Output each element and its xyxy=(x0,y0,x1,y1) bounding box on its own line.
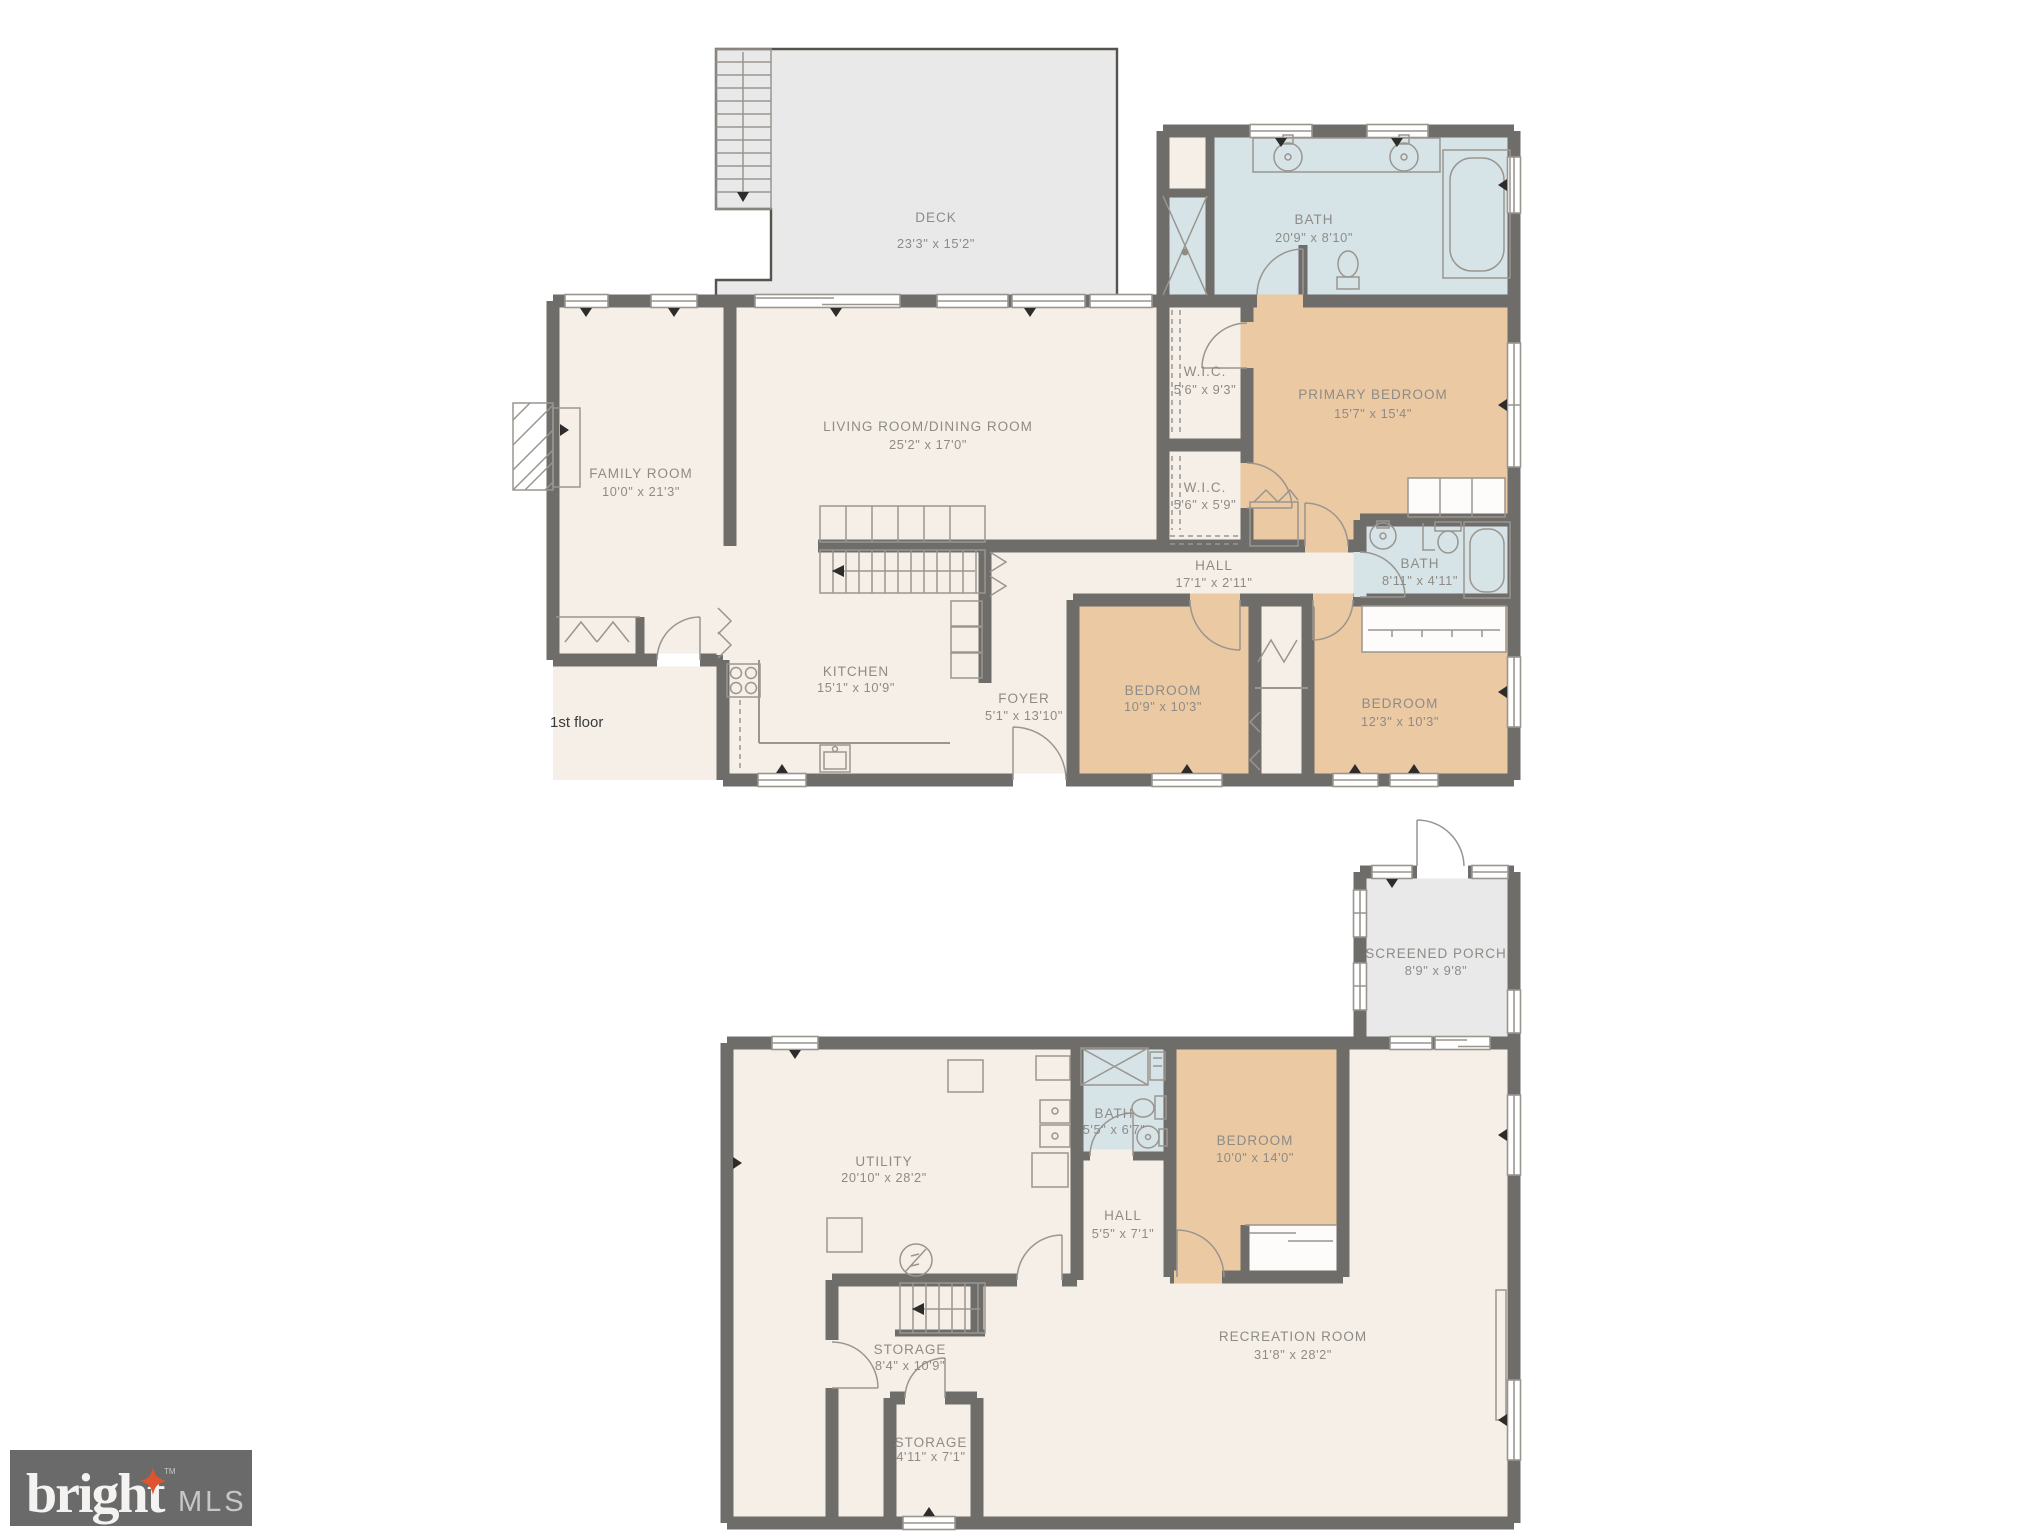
room-dims: 12'3" x 10'3" xyxy=(1361,714,1439,729)
room-dims: 20'10" x 28'2" xyxy=(841,1170,927,1185)
deck: DECK 23'3" x 15'2" xyxy=(716,49,1117,301)
logo-mls-text: MLS xyxy=(178,1486,247,1518)
room-dims: 10'0" x 14'0" xyxy=(1216,1150,1294,1165)
room-dims: 17'1" x 2'11" xyxy=(1175,575,1252,590)
room-label: BATH xyxy=(1400,556,1439,571)
room-dims: 15'1" x 10'9" xyxy=(817,680,895,695)
floor-caption: 1st floor xyxy=(550,714,603,731)
room-label: FOYER xyxy=(998,691,1050,706)
room-dims: 5'6" x 9'3" xyxy=(1174,382,1237,397)
room-label: KITCHEN xyxy=(823,664,889,679)
room-label: DECK xyxy=(915,210,957,225)
room-bath xyxy=(1077,1043,1170,1156)
room-label: STORAGE xyxy=(895,1435,968,1450)
room-dims: 8'11" x 4'11" xyxy=(1382,573,1458,588)
room-dims: 8'9" x 9'8" xyxy=(1405,963,1468,978)
room-dims: 4'11" x 7'1" xyxy=(896,1449,965,1464)
room-dims: 15'7" x 15'4" xyxy=(1334,406,1412,421)
porch-slider xyxy=(1435,1037,1490,1050)
room-label: BATH xyxy=(1294,212,1333,227)
room-label: HALL xyxy=(1104,1208,1142,1223)
room-label: BEDROOM xyxy=(1217,1133,1294,1148)
room-dims: 10'0" x 21'3" xyxy=(602,484,680,499)
room-dims: 20'9" x 8'10" xyxy=(1275,230,1353,245)
room-label: BATH xyxy=(1094,1106,1133,1121)
room-dims: 5'1" x 13'10" xyxy=(985,708,1063,723)
room-dims: 5'5" x 7'1" xyxy=(1092,1226,1155,1241)
brand-logo: bright TM MLS xyxy=(10,1450,252,1526)
room-label: SCREENED PORCH xyxy=(1365,946,1507,961)
room-label: W.I.C. xyxy=(1184,364,1227,379)
room-label: FAMILY ROOM xyxy=(589,466,693,481)
room-primary-bath xyxy=(1163,131,1514,301)
room-dims: 31'8" x 28'2" xyxy=(1254,1347,1332,1362)
lower-floor-plan: SCREENED PORCH 8'9" x 9'8" UTILITY 20'10… xyxy=(727,820,1521,1530)
primary-closet xyxy=(1408,478,1505,517)
room-label: W.I.C. xyxy=(1184,480,1227,495)
room-dims: 23'3" x 15'2" xyxy=(897,236,975,251)
room-label: UTILITY xyxy=(855,1154,912,1169)
sliding-door xyxy=(755,295,900,308)
bath-closet xyxy=(1163,133,1210,192)
room-dims: 5'6" x 5'9" xyxy=(1174,497,1237,512)
room-label: LIVING ROOM/DINING ROOM xyxy=(823,419,1033,434)
room-dims: 10'9" x 10'3" xyxy=(1124,699,1202,714)
floorplan-image: DECK 23'3" x 15'2" xyxy=(0,0,2040,1536)
bedroom-closet xyxy=(1362,604,1506,652)
room-dims: 5'5" x 6'7" xyxy=(1083,1122,1146,1137)
room-label: BEDROOM xyxy=(1125,683,1202,698)
room-label: PRIMARY BEDROOM xyxy=(1298,387,1448,402)
room-label: RECREATION ROOM xyxy=(1219,1329,1367,1344)
first-floor-plan: DECK 23'3" x 15'2" xyxy=(513,49,1521,787)
room-label: BEDROOM xyxy=(1362,696,1439,711)
room-dims: 8'4" x 10'9" xyxy=(875,1358,945,1373)
logo-brand-text: bright xyxy=(26,1463,166,1525)
room-label: HALL xyxy=(1195,558,1233,573)
logo-tm-text: TM xyxy=(164,1467,176,1476)
room-label: STORAGE xyxy=(874,1342,947,1357)
room-dims: 25'2" x 17'0" xyxy=(889,437,967,452)
